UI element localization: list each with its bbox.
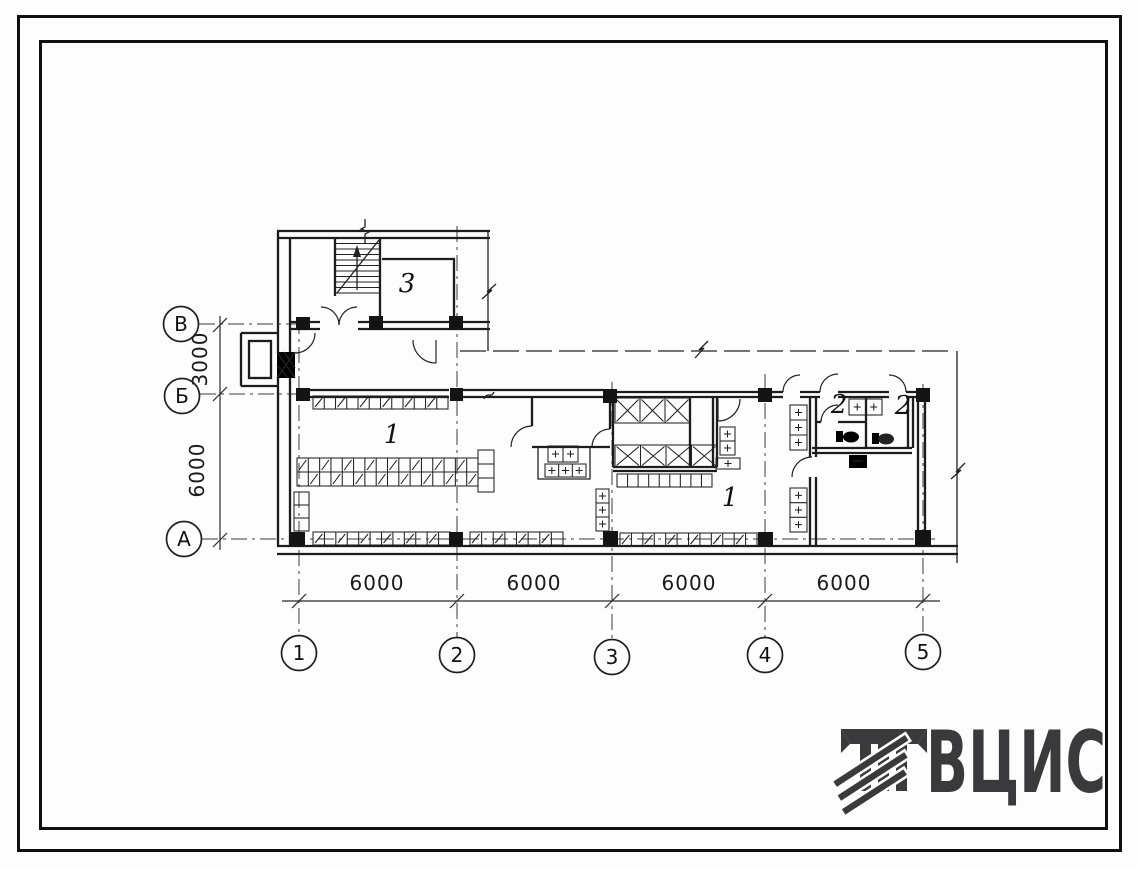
drawing-sheet: 6000 6000 6000 6000 3000 6000 В Б А 1 2 … bbox=[0, 0, 1139, 869]
vcis-logo-text: ВЦИС bbox=[926, 712, 1106, 812]
washbasin-pair bbox=[548, 446, 578, 462]
dim-3-4: 6000 bbox=[662, 571, 717, 595]
axis-label-2: 2 bbox=[451, 643, 464, 667]
washbasin-row bbox=[545, 464, 586, 477]
axis-label-row-b: Б bbox=[175, 384, 189, 408]
break-mark bbox=[482, 284, 496, 299]
toilet-fixture bbox=[872, 433, 879, 444]
axis-label-5: 5 bbox=[917, 640, 930, 664]
axis-label-row-a: А bbox=[177, 527, 191, 551]
break-mark bbox=[695, 341, 708, 358]
break-mark bbox=[951, 463, 965, 479]
shelving-rack bbox=[470, 532, 563, 545]
vcis-logo-icon bbox=[825, 729, 927, 816]
fixture-stack bbox=[596, 489, 609, 531]
shelving-rack-end bbox=[478, 450, 494, 492]
axis-label-3: 3 bbox=[606, 645, 619, 669]
x-rack bbox=[615, 445, 717, 467]
room-label-hall-east: 1 bbox=[722, 483, 739, 513]
axis-label-4: 4 bbox=[759, 643, 772, 667]
shelving-rack bbox=[297, 458, 478, 486]
axis-label-1: 1 bbox=[293, 641, 306, 665]
floor-plan-drawing: 6000 6000 6000 6000 3000 6000 В Б А 1 2 … bbox=[0, 0, 1139, 869]
dim-2-3: 6000 bbox=[507, 571, 562, 595]
dim-v-b: 3000 bbox=[188, 332, 212, 387]
room-label-san-right: 2 bbox=[894, 391, 912, 421]
washbasin-pair bbox=[849, 399, 882, 415]
fixture-stack bbox=[790, 405, 807, 450]
vcis-logo: ВЦИС bbox=[825, 712, 1106, 816]
dim-4-5: 6000 bbox=[817, 571, 872, 595]
shelving-rack bbox=[294, 492, 309, 531]
room-label-hall-west: 1 bbox=[384, 420, 401, 450]
dim-1-2: 6000 bbox=[350, 571, 405, 595]
toilet-fixture bbox=[836, 431, 843, 442]
room-label-stair: 3 bbox=[399, 269, 416, 299]
fixture-stack bbox=[790, 488, 807, 532]
dim-b-a: 6000 bbox=[185, 443, 209, 498]
x-rack bbox=[615, 398, 690, 423]
fixture-cabinet bbox=[716, 458, 740, 469]
axis-label-row-v: В bbox=[174, 312, 188, 336]
shelving-rack bbox=[617, 474, 712, 487]
room-label-san-left: 2 bbox=[830, 390, 848, 420]
stair-cut-line bbox=[337, 240, 379, 293]
fixture-cabinet bbox=[720, 427, 735, 455]
